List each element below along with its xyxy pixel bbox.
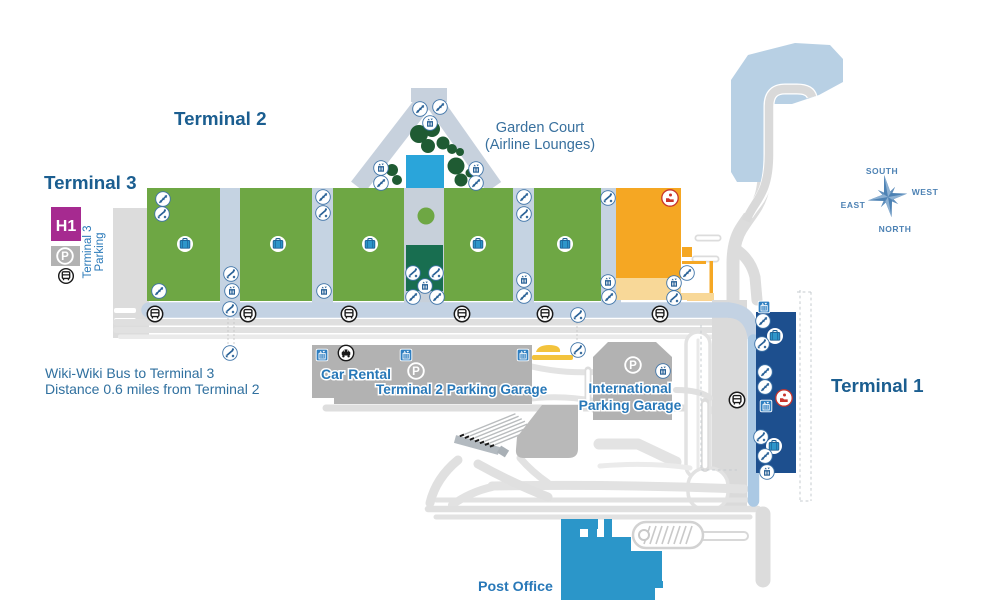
- svg-text:(Airline Lounges): (Airline Lounges): [485, 137, 595, 153]
- svg-text:Terminal 3: Terminal 3: [82, 225, 94, 278]
- svg-text:Terminal 2 Parking Garage: Terminal 2 Parking Garage: [376, 382, 548, 397]
- svg-text:Post Office: Post Office: [478, 579, 553, 595]
- svg-text:NORTH: NORTH: [879, 224, 912, 234]
- svg-text:Car Rental: Car Rental: [321, 366, 391, 382]
- svg-text:Parking: Parking: [94, 233, 106, 272]
- svg-text:Parking Garage: Parking Garage: [579, 397, 682, 413]
- svg-text:International: International: [588, 380, 671, 396]
- svg-text:Wiki-Wiki Bus to Terminal 3: Wiki-Wiki Bus to Terminal 3: [45, 365, 215, 381]
- svg-text:Garden Court: Garden Court: [496, 120, 584, 136]
- svg-text:EAST: EAST: [841, 200, 866, 210]
- svg-text:Terminal 2: Terminal 2: [174, 108, 267, 129]
- svg-text:SOUTH: SOUTH: [866, 166, 898, 176]
- svg-text:Terminal 3: Terminal 3: [44, 172, 137, 193]
- svg-text:WEST: WEST: [912, 187, 939, 197]
- svg-text:H1: H1: [56, 218, 77, 235]
- svg-text:Distance 0.6 miles from Termin: Distance 0.6 miles from Terminal 2: [45, 381, 260, 397]
- svg-text:Terminal 1: Terminal 1: [831, 375, 924, 396]
